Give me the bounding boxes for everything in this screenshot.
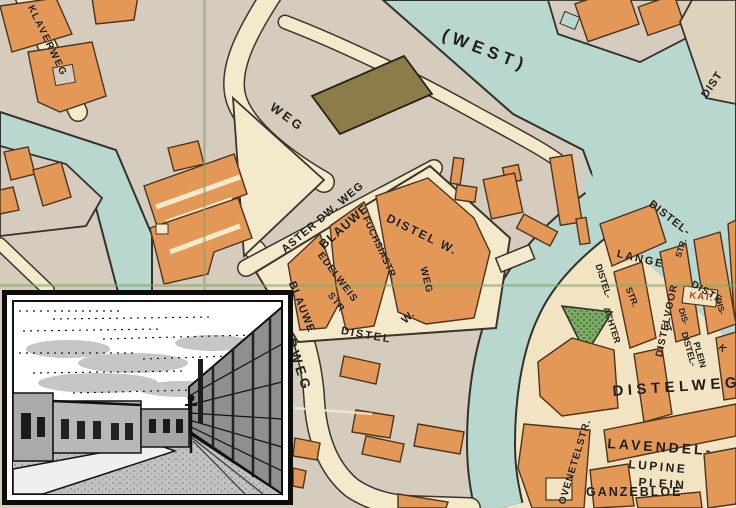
label-achter: ACHTER <box>601 306 621 344</box>
label-edelweis-str: STR. <box>325 291 348 317</box>
label-lavendel: LAVENDEL- <box>607 436 714 457</box>
label-distel-bank: DISTEL- <box>646 199 692 238</box>
label-aster-dw-weg: ASTER DW. WEG <box>280 181 366 256</box>
label-distel-edge: DISTE <box>689 280 724 306</box>
label-weg-vertical: WEG <box>417 266 433 295</box>
label-lupine: LUPINE <box>628 458 688 475</box>
label-achter-str: STR. <box>624 286 640 308</box>
label-dis-1: DIS- <box>677 307 690 326</box>
label-distelweg: DISTELWEG <box>612 375 736 399</box>
label-k-edge: K <box>716 343 728 355</box>
label-klaverweg: KLAVERWEG <box>25 4 68 78</box>
inset-engraving <box>2 290 293 505</box>
label-lange: LANGE <box>616 249 666 271</box>
label-edelweis: EDELWEIS <box>315 251 359 305</box>
label-kat: KAT. <box>689 291 714 303</box>
label-plein: PLEIN <box>638 476 687 491</box>
label-distel-w: DISTEL W. <box>385 212 460 257</box>
label-dis-edge: DIS- <box>714 297 727 316</box>
label-blauwe-top: BLAUWE <box>317 202 371 251</box>
label-ganzebloe: GANZEBLOE <box>586 486 682 499</box>
label-plein-vertical: PLEIN <box>691 341 707 369</box>
label-distel-achter: DISTEL- <box>593 263 612 299</box>
label-weg-top: WEG <box>268 101 307 134</box>
label-voor-str: STR. <box>674 238 688 259</box>
inset-photo <box>2 290 293 505</box>
label-ovenetelstr: OVENETELSTR. <box>558 418 593 506</box>
label-st-small: ST <box>662 320 673 333</box>
map-screenshot: KLAVERWEG (WEST) WEG DIST ASTER DW. WEG … <box>0 0 736 508</box>
label-distel-plein: DISTEL- <box>679 331 697 367</box>
label-dist-corner: DIST <box>700 70 725 100</box>
chimney <box>198 359 203 423</box>
label-distel-bottom: DISTEL <box>340 326 392 346</box>
label-w-bottom: W. <box>400 309 417 326</box>
label-distelvoor: DISTELVOOR <box>655 283 680 358</box>
label-west: (WEST) <box>440 26 531 74</box>
label-fuchsiastr: FUCHSIASTR. <box>360 215 398 282</box>
inset-artwork <box>13 301 282 494</box>
